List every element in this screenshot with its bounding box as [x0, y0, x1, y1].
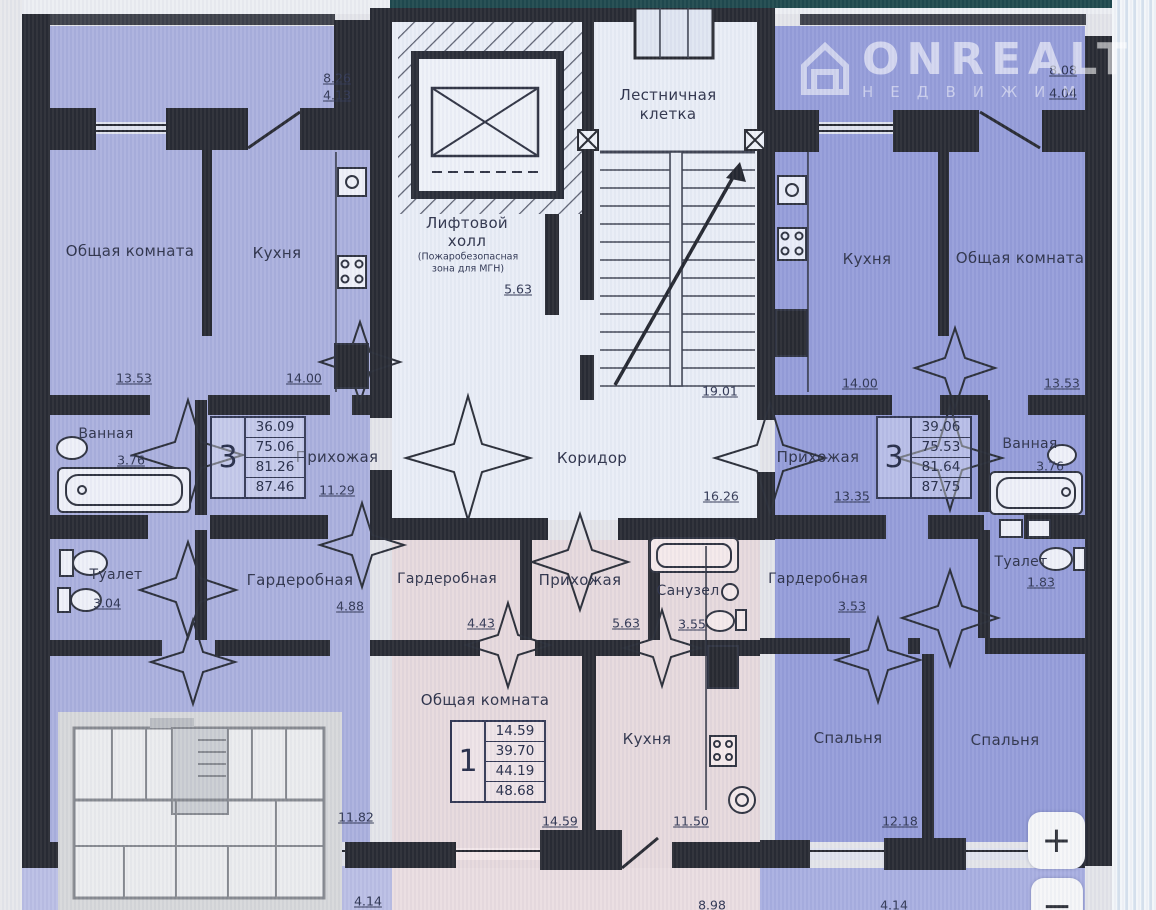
scan-edge-strip	[390, 0, 1156, 8]
right-room-count: 3	[878, 418, 912, 497]
center-sanuzel-label: Санузел	[657, 583, 720, 599]
corridor-label: Коридор	[557, 449, 627, 467]
right-balcony-area-reduced: 4.04	[1049, 86, 1077, 101]
elevator-hall-label-2: холл	[448, 232, 486, 250]
left-living-label: Общая комната	[66, 242, 195, 260]
right-bedroom1-area: 12.18	[882, 814, 918, 829]
center-wardrobe-label: Гардеробная	[397, 571, 497, 587]
center-living-area: 14.59	[542, 814, 578, 829]
stairwell-label-1: Лестничная	[620, 86, 717, 104]
corridor-area: 16.26	[703, 489, 739, 504]
page-margin	[1112, 0, 1156, 910]
center-area-row: 14.59	[486, 722, 544, 742]
center-kitchen-area: 11.50	[673, 814, 709, 829]
left-bottom-balcony-dim: 4.14	[354, 894, 382, 909]
left-bathroom-area: 3.76	[117, 453, 145, 468]
center-wardrobe-area: 4.43	[467, 616, 495, 631]
right-kitchen-area: 14.00	[842, 376, 878, 391]
center-hallway-label: Прихожая	[539, 571, 622, 589]
elevator-hall-label-1: Лифтовой	[426, 214, 508, 232]
center-area-row: 39.70	[486, 742, 544, 762]
right-bedroom1-label: Спальня	[814, 729, 883, 747]
left-area-row: 75.06	[246, 438, 304, 458]
right-wardrobe-label: Гардеробная	[768, 571, 868, 587]
zoom-out-button[interactable]: −	[1031, 878, 1083, 910]
center-area-table: 1 14.59 39.70 44.19 48.68	[450, 720, 546, 803]
left-bottom-room-dim: 11.82	[338, 810, 374, 825]
right-hallway-label: Прихожая	[777, 448, 860, 466]
right-bathroom-area: 3.76	[1036, 459, 1064, 474]
right-area-row: 87.75	[912, 478, 970, 497]
left-bathroom-label: Ванная	[78, 426, 133, 442]
left-balcony-area: 8.26	[323, 71, 351, 86]
left-living-area: 13.53	[116, 371, 152, 386]
left-wardrobe-area: 4.88	[336, 599, 364, 614]
right-bathroom-label: Ванная	[1002, 436, 1057, 452]
left-wc-area: 3.04	[93, 596, 121, 611]
left-room-count: 3	[212, 418, 246, 497]
elevator-shaft	[398, 22, 582, 214]
right-wardrobe-area: 3.53	[838, 599, 866, 614]
left-hallway-label: Прихожая	[296, 448, 379, 466]
center-room-count: 1	[452, 722, 486, 801]
right-living-label: Общая комната	[956, 249, 1085, 267]
center-sanuzel-area: 3.55	[678, 617, 706, 632]
stairwell-label-2: клетка	[640, 105, 697, 123]
stairwell-area: 19.01	[702, 384, 738, 399]
center-kitchen-label: Кухня	[623, 730, 672, 748]
right-wc-label: Туалет	[995, 554, 1048, 570]
left-area-row: 81.26	[246, 458, 304, 478]
left-area-row: 36.09	[246, 418, 304, 438]
right-balcony-area: 8.08	[1049, 63, 1077, 78]
right-area-row: 75.53	[912, 438, 970, 458]
zoom-in-button[interactable]: +	[1028, 812, 1085, 869]
floorplan-viewer: Общая комната 13.53 Кухня 14.00 8.26 4.1…	[0, 0, 1156, 910]
mini-floorplan	[58, 712, 342, 910]
left-kitchen-area: 14.00	[286, 371, 322, 386]
elevator-hall-area: 5.63	[504, 282, 532, 297]
left-wardrobe-label: Гардеробная	[247, 571, 354, 589]
right-bottom-balcony-dim: 4.14	[880, 898, 908, 910]
left-area-table: 3 36.09 75.06 81.26 87.46	[210, 416, 306, 499]
right-wc-area: 1.83	[1027, 575, 1055, 590]
elevator-hall-note-1: (Пожаробезопасная	[418, 252, 518, 263]
right-area-row: 39.06	[912, 418, 970, 438]
elevator-hall-note-2: зона для МГН)	[432, 264, 504, 275]
center-area-row: 48.68	[486, 782, 544, 801]
right-living-area: 13.53	[1044, 376, 1080, 391]
right-hallway-area: 13.35	[834, 489, 870, 504]
right-bedroom2-label: Спальня	[971, 731, 1040, 749]
left-hallway-area: 11.29	[319, 483, 355, 498]
center-area-row: 44.19	[486, 762, 544, 782]
left-area-row: 87.46	[246, 478, 304, 497]
right-area-row: 81.64	[912, 458, 970, 478]
center-living-label: Общая комната	[421, 691, 550, 709]
center-hallway-area: 5.63	[612, 616, 640, 631]
right-area-table: 3 39.06 75.53 81.64 87.75	[876, 416, 972, 499]
right-kitchen-label: Кухня	[843, 250, 892, 268]
center-bottom-balcony-dim: 8.98	[698, 898, 726, 910]
left-kitchen-label: Кухня	[253, 244, 302, 262]
left-wc-label: Туалет	[90, 567, 143, 583]
left-balcony-area-reduced: 4.13	[323, 88, 351, 103]
